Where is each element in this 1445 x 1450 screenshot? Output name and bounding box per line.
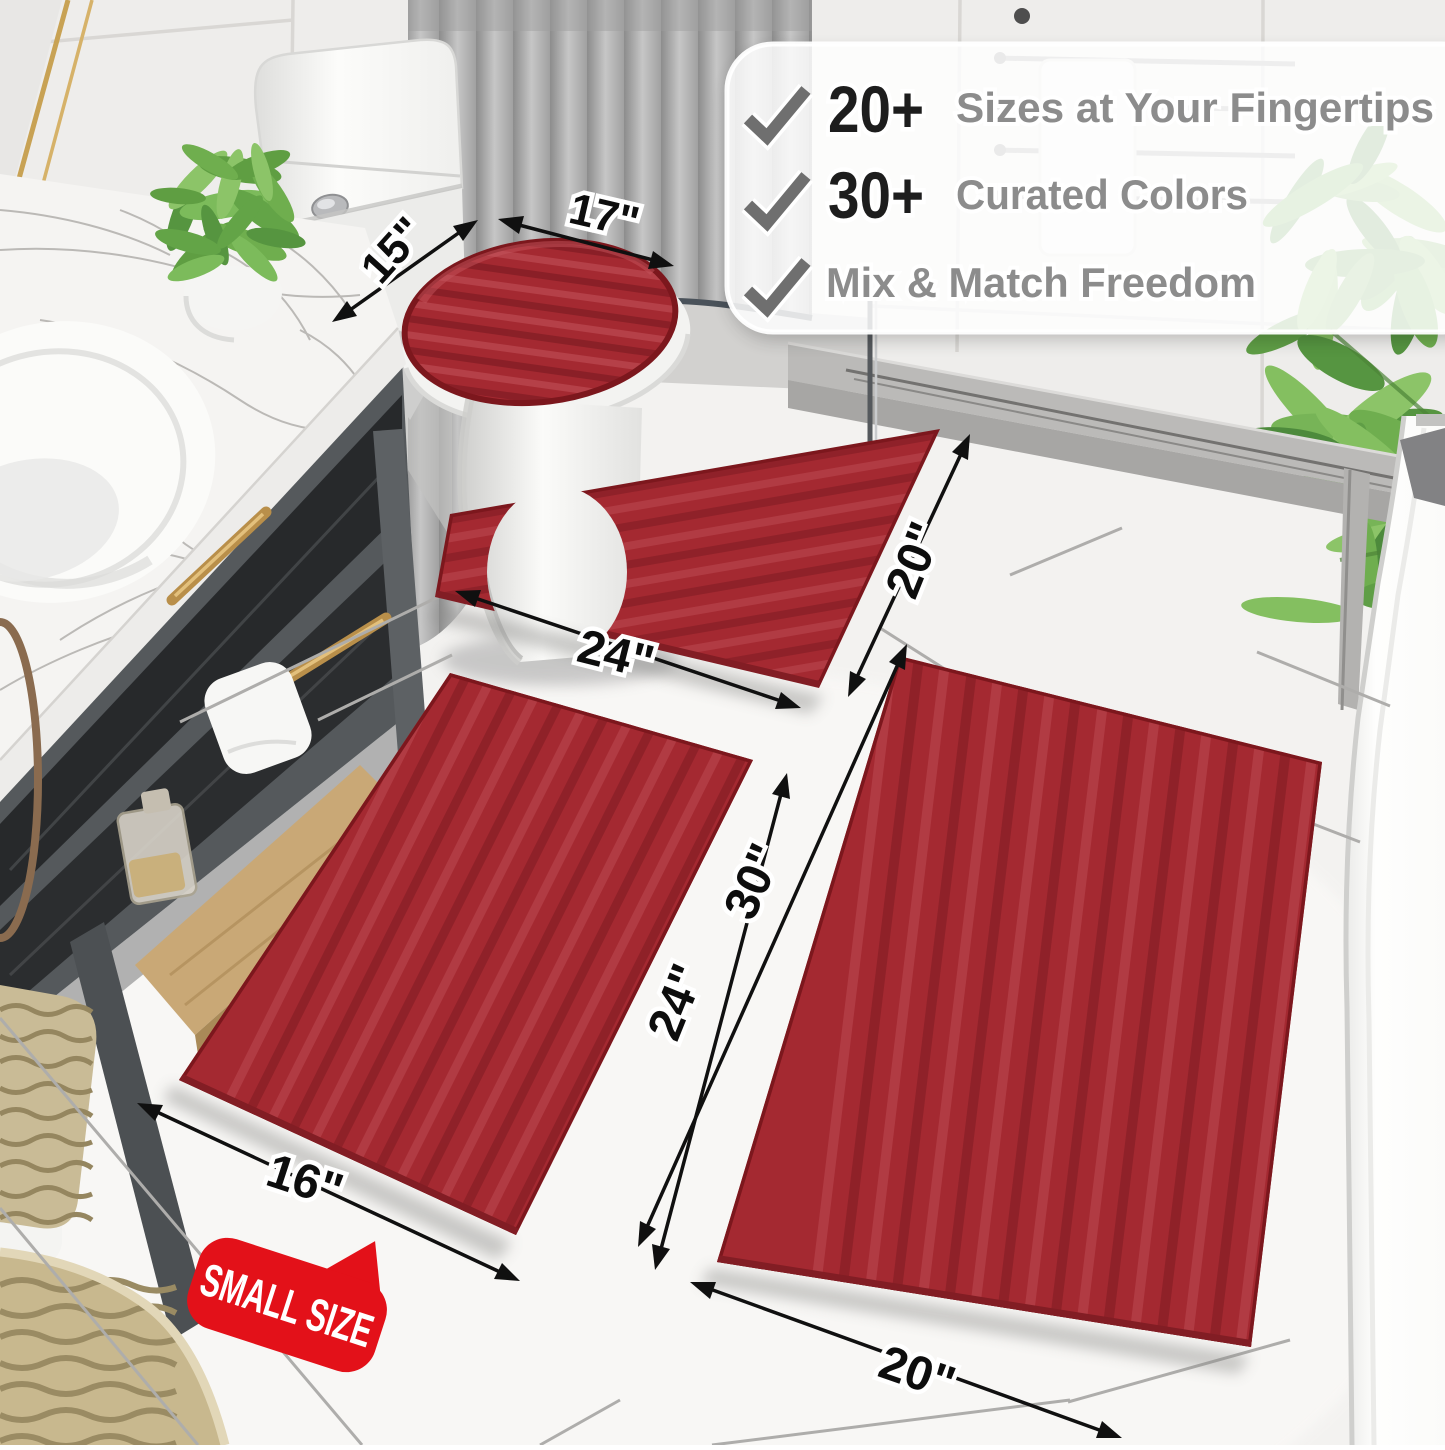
svg-text:Sizes at Your Fingertips: Sizes at Your Fingertips xyxy=(956,84,1434,131)
svg-text:Mix & Match Freedom: Mix & Match Freedom xyxy=(826,259,1256,306)
svg-text:Curated Colors: Curated Colors xyxy=(956,171,1248,218)
svg-text:30+: 30+ xyxy=(828,158,924,232)
svg-text:20+: 20+ xyxy=(828,72,924,146)
